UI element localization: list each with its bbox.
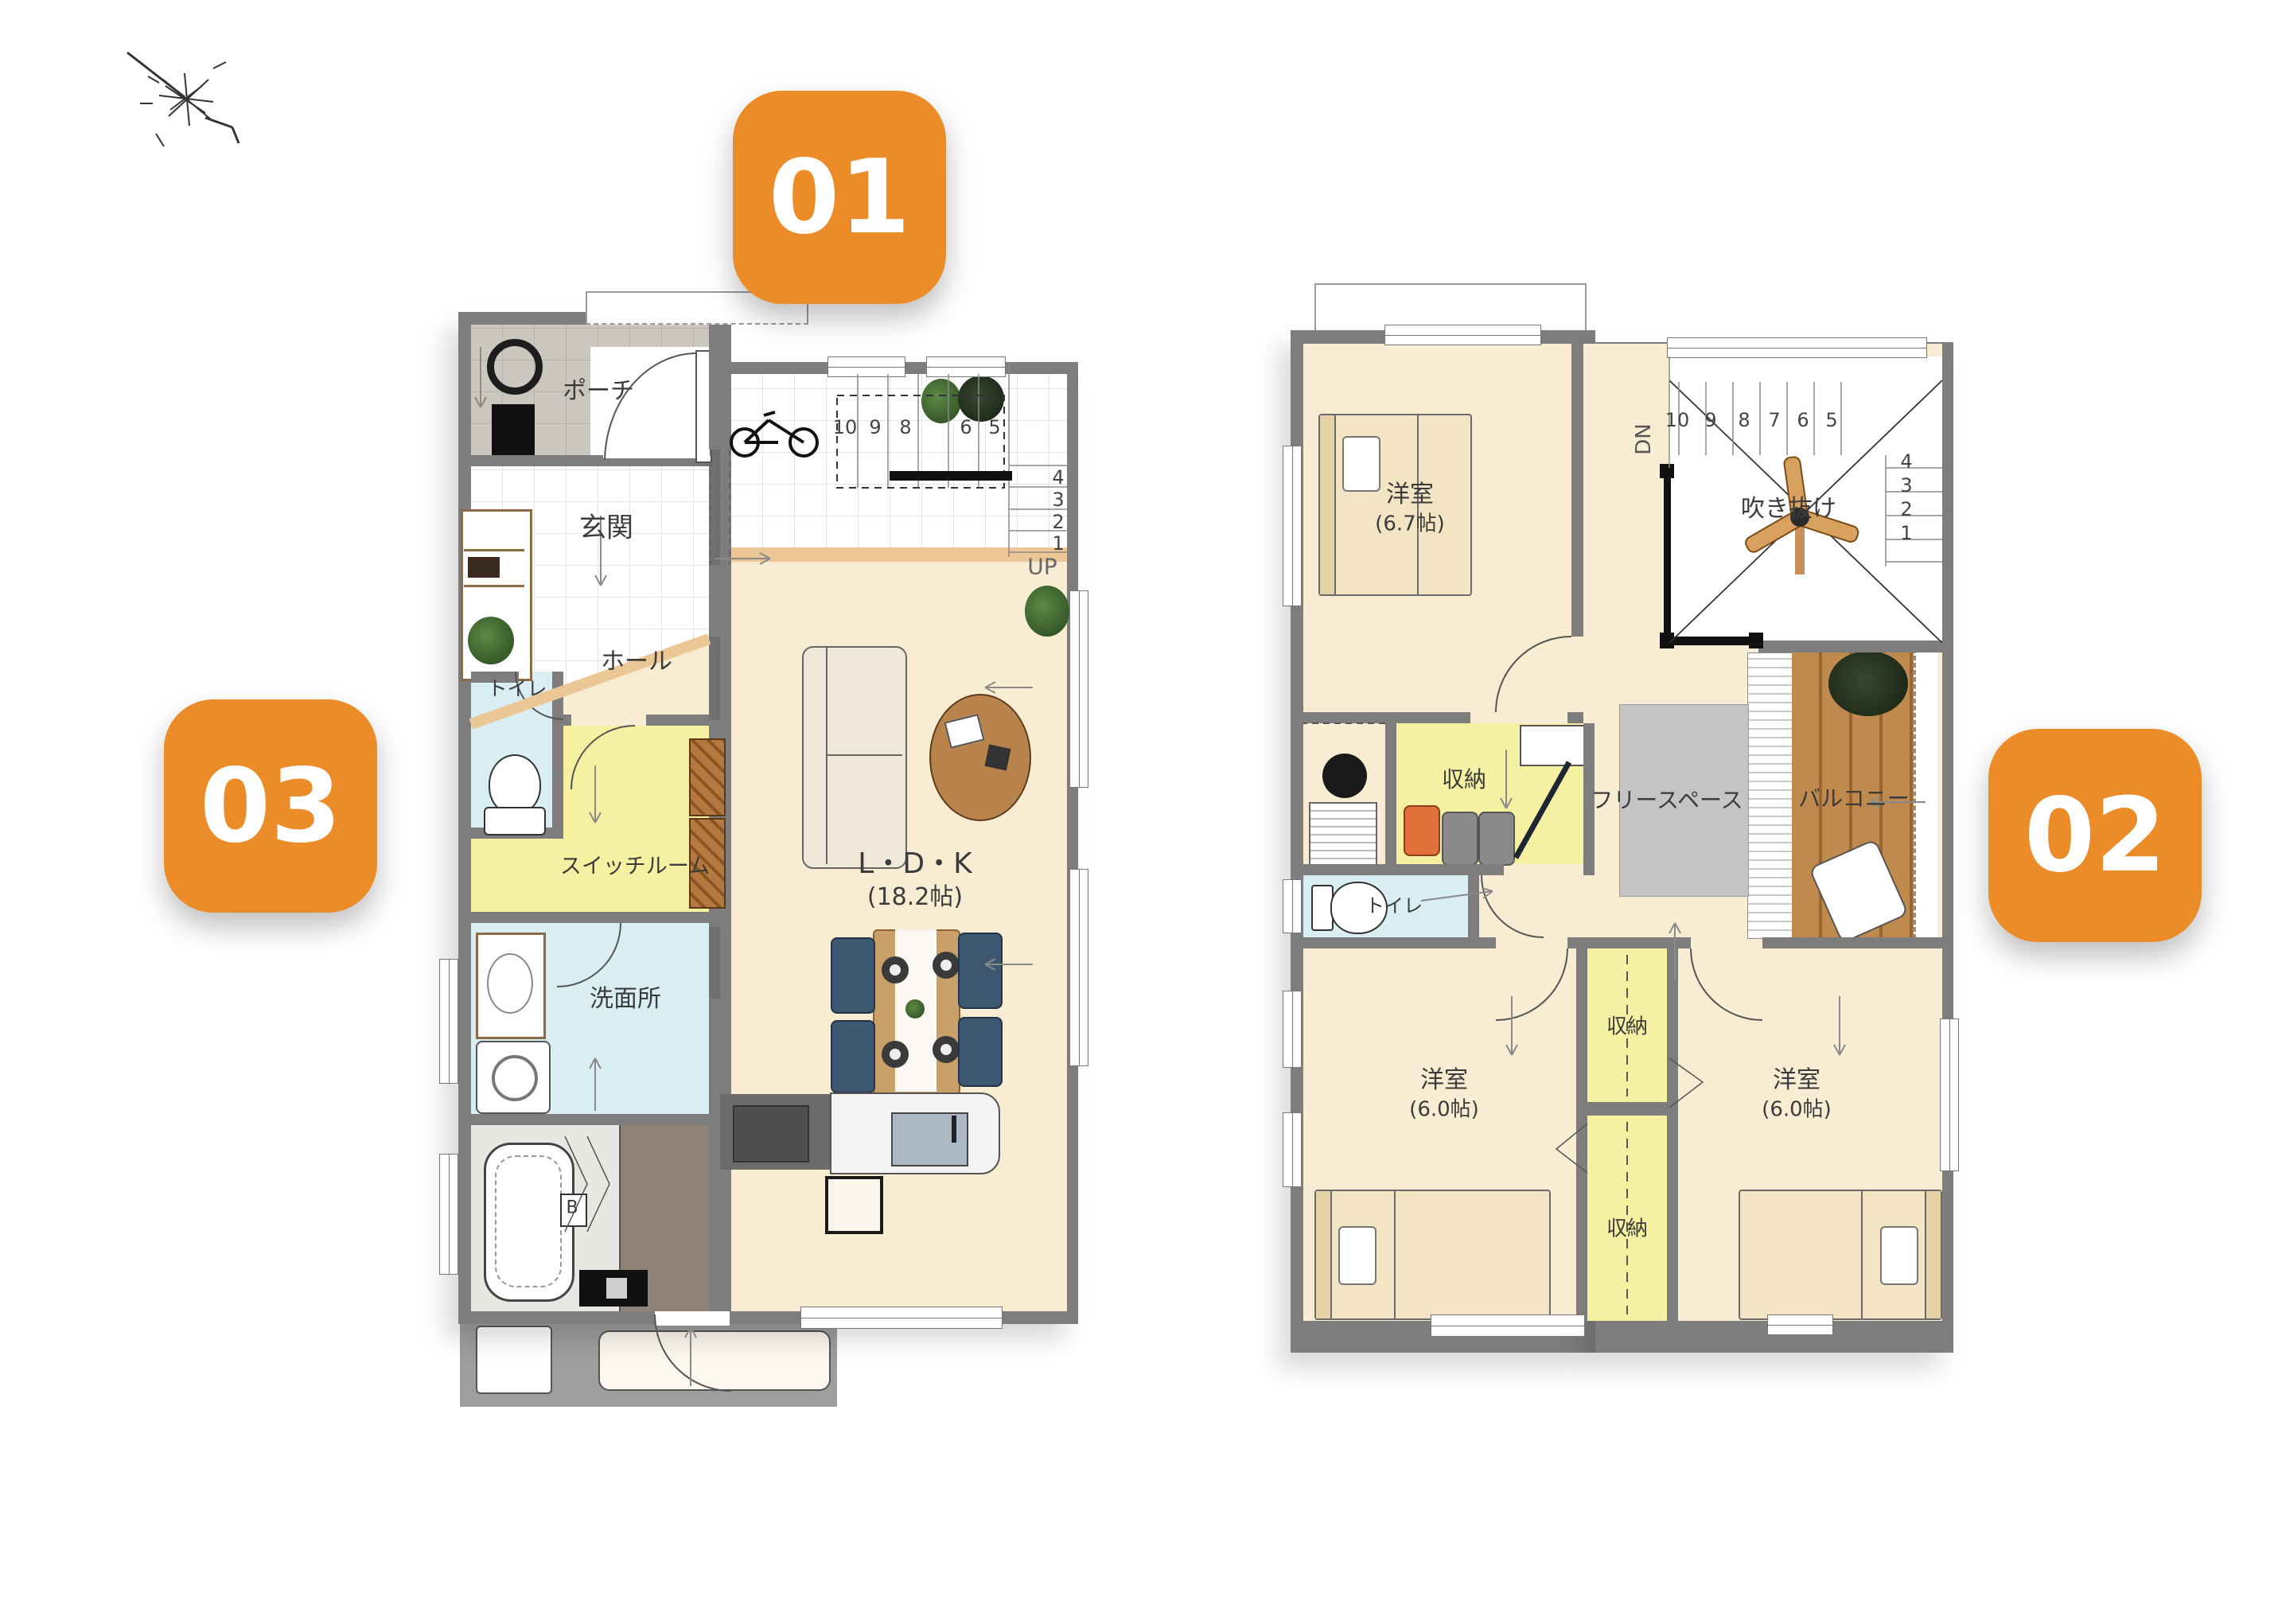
room-label-porch: ポーチ [563, 371, 634, 406]
badge-03-label: 03 [200, 747, 341, 866]
room-label-closet-top: 収納 [1606, 1011, 1648, 1040]
room-label-washroom: 洗面所 [590, 979, 661, 1014]
room-label-bedroom-right: 洋室 [1773, 1060, 1820, 1095]
room-label-genkan: 玄関 [579, 506, 633, 545]
marker-badge-03[interactable]: 03 [164, 699, 377, 913]
bicycle-icon [731, 412, 817, 456]
room-label-void: 吹き抜け [1741, 489, 1836, 524]
room-label-closet-bottom: 収納 [1606, 1213, 1648, 1242]
stairs-up-label: UP [1027, 554, 1057, 580]
bath-door-label: B [566, 1198, 578, 1218]
floorplan-page: { "badges": {"b1": "01", "b2": "02", "b3… [0, 0, 2278, 1624]
stairs-dn-label: DN [1632, 423, 1656, 454]
room-label-free-space: フリースペース [1591, 783, 1743, 815]
room-label-balcony: バルコニー [1798, 781, 1909, 813]
badge-01-label: 01 [769, 138, 910, 257]
room-label-toilet2: トイレ [1365, 890, 1423, 918]
room-label-ldk-size: (18.2帖) [867, 877, 963, 912]
room-label-toilet1: トイレ [487, 673, 547, 702]
badge-02-label: 02 [2024, 777, 2166, 895]
room-label-bedroom-main: 洋室 [1386, 474, 1434, 509]
room-label-bedroom-left: 洋室 [1420, 1060, 1468, 1095]
marker-badge-01[interactable]: 01 [733, 91, 946, 304]
room-label-bedroom-main-size: (6.7帖) [1375, 508, 1445, 537]
room-label-hall: ホール [601, 641, 672, 676]
room-label-bedroom-left-size: (6.0帖) [1409, 1093, 1479, 1123]
room-label-bedroom-right-size: (6.0帖) [1762, 1093, 1832, 1123]
room-label-ldk: L・D・K [858, 840, 972, 882]
compass-north-arrow [127, 53, 239, 146]
marker-badge-02[interactable]: 02 [1988, 729, 2202, 942]
room-label-walkin-closet: 収納 [1442, 762, 1486, 794]
room-label-switch-room: スイッチルーム [560, 849, 710, 880]
